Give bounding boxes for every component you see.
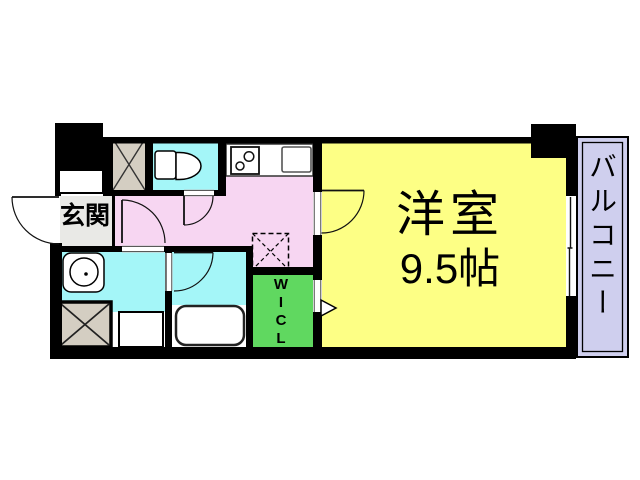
washbasin-icon — [63, 253, 104, 292]
wicl-letter-i: I — [267, 294, 295, 312]
floor-plan-page: 玄関 洋室 9.5帖 W I C L バルコニー — [0, 0, 640, 480]
shoe-cabinet — [59, 170, 103, 193]
hatch-square-top — [113, 139, 145, 190]
pillar-top-right — [531, 124, 576, 158]
bathroom-floor — [172, 252, 246, 305]
wicl-letter-l: L — [267, 330, 295, 348]
wicl-letter-c: C — [267, 312, 295, 330]
kitchen-sink-icon — [282, 147, 311, 172]
entrance-label: 玄関 — [60, 202, 110, 230]
entrance-door-arc — [12, 197, 59, 244]
pillar-top-left — [55, 123, 103, 169]
bathtub-icon — [176, 306, 244, 345]
opening-western-room — [313, 192, 321, 235]
washing-machine-pan-icon — [119, 312, 163, 347]
western-room-name-label: 洋室 — [330, 189, 570, 241]
hatch-square-bottom — [59, 302, 111, 347]
toilet-icon — [155, 151, 201, 180]
kitchen-counter — [226, 144, 313, 176]
stove-icon — [231, 147, 259, 174]
balcony-label: バルコニー — [584, 152, 618, 352]
walk-in-closet-label: W I C L — [267, 276, 295, 348]
wicl-letter-w: W — [267, 276, 295, 294]
western-room-size-label: 9.5帖 — [330, 247, 570, 291]
opening-washroom — [122, 246, 164, 253]
opening-bathroom — [165, 253, 172, 291]
opening-toilet — [184, 190, 214, 197]
